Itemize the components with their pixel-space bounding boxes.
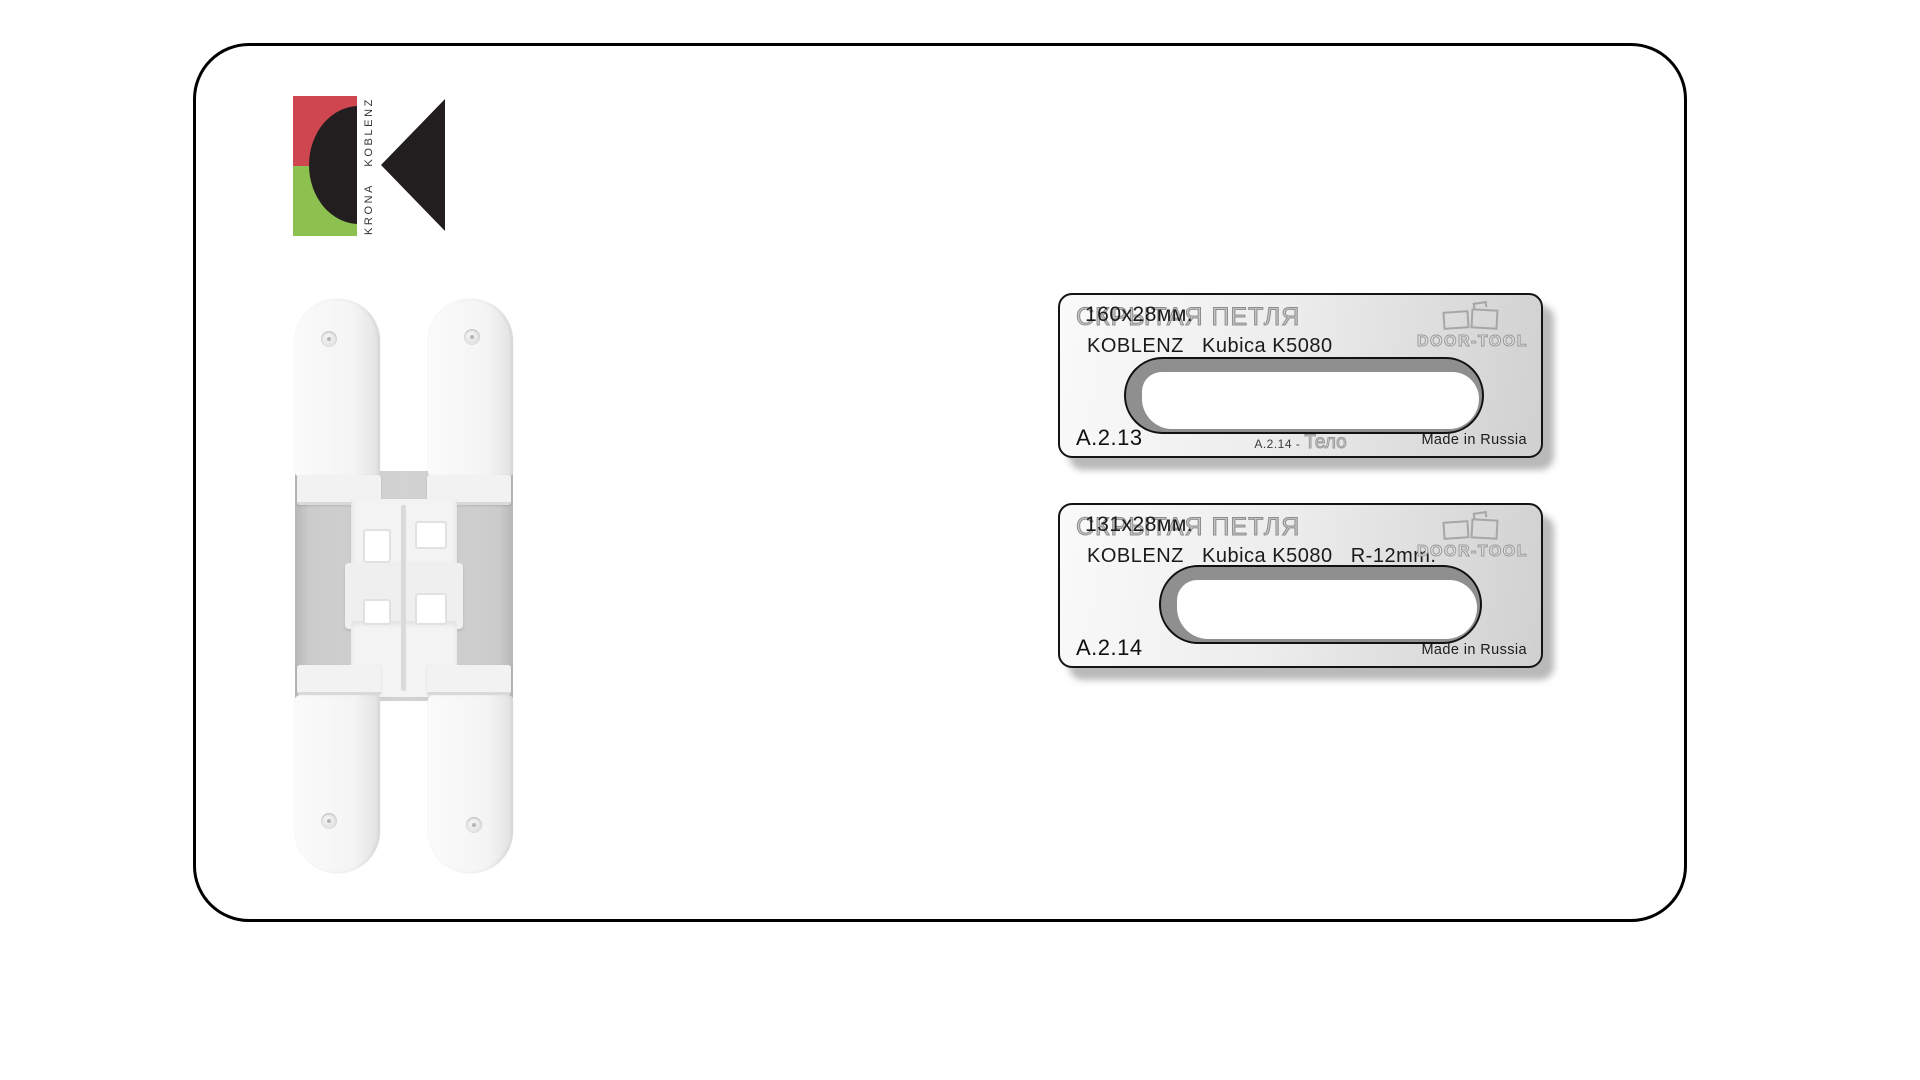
door-tool-logo: DOOR-TOOL	[1417, 513, 1527, 569]
hinge-cutout-slot-inner	[1177, 580, 1477, 639]
plate-center-note-engraved: Тело	[1304, 432, 1346, 453]
door-tool-logo: DOOR-TOOL	[1417, 303, 1527, 359]
door-tool-icon-right-panel	[1470, 518, 1498, 539]
template-plate-a2-13: СКРЫТАЯ ПЕТЛЯ160х28мм. KOBLENZ Kubica K5…	[1058, 293, 1543, 458]
screw-dot	[472, 823, 476, 827]
door-tool-icon-right-panel	[1470, 308, 1498, 329]
hinge-cutout	[415, 521, 447, 549]
door-tool-wordmark: DOOR-TOOL	[1417, 333, 1527, 351]
plate-subtitle: KOBLENZ Kubica K5080	[1087, 335, 1333, 358]
plate-title-size: 131х28мм.	[1085, 513, 1193, 537]
screw-dot	[327, 819, 331, 823]
hinge-wing-top-right	[428, 299, 513, 477]
plate-article-number: A.2.14	[1076, 635, 1143, 661]
hinge-wing-bottom-right	[428, 695, 513, 873]
template-plate-a2-14: СКРЫТАЯ ПЕТЛЯ131х28мм. KOBLENZ Kubica K5…	[1058, 503, 1543, 668]
krona-koblenz-logo: KRONA KOBLENZ	[293, 96, 445, 236]
screw-dot	[327, 337, 331, 341]
hinge-wing-bottom-left	[295, 695, 380, 873]
hinge-cutout	[415, 593, 447, 625]
logo-word-krona: KRONA	[363, 183, 375, 235]
door-tool-icon-flap	[1473, 301, 1488, 309]
hinge-slider-bottom-left	[297, 665, 381, 695]
catalog-frame: KRONA KOBLENZ	[193, 43, 1687, 922]
door-tool-icon	[1441, 305, 1501, 329]
hinge-cutout-slot	[1159, 565, 1482, 644]
logo-word-koblenz: KOBLENZ	[363, 97, 375, 167]
screw-hole-icon	[321, 331, 337, 347]
made-in-label: Made in Russia	[1421, 642, 1527, 658]
made-in-label: Made in Russia	[1421, 432, 1527, 448]
logo-vertical-text-strip: KRONA KOBLENZ	[357, 96, 381, 236]
hinge-slider-bottom-right	[427, 665, 511, 695]
hinge-cutout-slot-inner	[1142, 372, 1479, 429]
screw-hole-icon	[466, 817, 482, 833]
door-tool-icon-left-panel	[1442, 520, 1469, 540]
screw-hole-icon	[464, 329, 480, 345]
page-canvas: KRONA KOBLENZ	[0, 0, 1920, 1080]
door-tool-icon-flap	[1473, 511, 1488, 519]
plate-title-size: 160х28мм.	[1085, 303, 1193, 327]
door-tool-icon-left-panel	[1442, 310, 1469, 330]
hinge-pin	[401, 505, 406, 691]
hinge-cutout	[363, 529, 391, 563]
plate-center-note-prefix: A.2.14 -	[1254, 437, 1300, 451]
door-tool-wordmark: DOOR-TOOL	[1417, 543, 1527, 561]
hinge-cutout-slot	[1124, 357, 1484, 434]
logo-vertical-text: KRONA KOBLENZ	[357, 96, 381, 236]
logo-triangle-icon	[381, 99, 445, 231]
screw-dot	[470, 335, 474, 339]
hinge-cutout	[363, 599, 391, 625]
hinge-product-image	[295, 299, 513, 873]
hinge-wing-top-left	[295, 299, 380, 477]
screw-hole-icon	[321, 813, 337, 829]
door-tool-icon	[1441, 515, 1501, 539]
